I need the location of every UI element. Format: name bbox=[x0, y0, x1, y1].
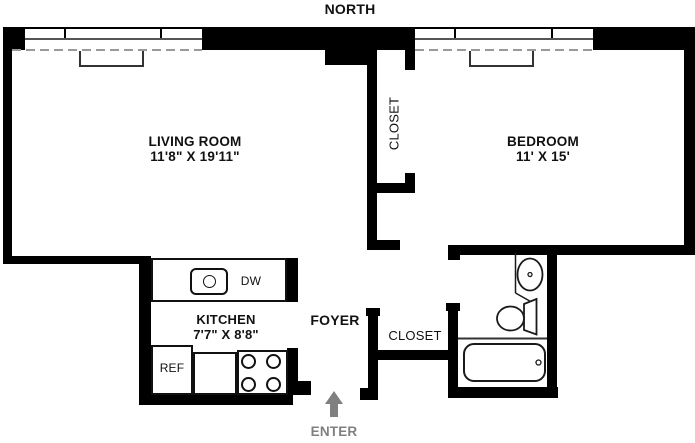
refrigerator-label: REF bbox=[151, 362, 193, 375]
bathroom-sink-drain-icon bbox=[528, 273, 532, 277]
wall-kitchen-right-lower bbox=[287, 348, 298, 395]
bedroom-closet-label: CLOSET bbox=[387, 84, 402, 164]
enter-arrow-shaft bbox=[330, 403, 338, 417]
kitchen-name: KITCHEN bbox=[146, 312, 306, 327]
stove-burner-icon bbox=[241, 377, 256, 392]
wall-foyer-closet-left-foot bbox=[360, 388, 378, 400]
stove-burner-icon bbox=[266, 377, 281, 392]
kitchen-sink-drain-icon bbox=[203, 275, 216, 288]
kitchen-dimensions: 7'7" X 8'8" bbox=[146, 327, 306, 342]
wall-divider-jamb bbox=[377, 240, 400, 250]
dishwasher-label: DW bbox=[231, 275, 271, 288]
bathtub bbox=[464, 344, 545, 381]
kitchen-label: KITCHEN 7'7" X 8'8" bbox=[146, 312, 306, 342]
wall-living-room-bottom bbox=[3, 256, 151, 264]
wall-left-outer bbox=[3, 27, 12, 264]
bedroom-window-outer bbox=[415, 27, 593, 29]
foyer-closet-label: CLOSET bbox=[375, 328, 455, 343]
wall-bedroom-closet-top bbox=[405, 50, 415, 70]
wall-right-outer bbox=[684, 27, 695, 255]
kitchen-counter-bottom bbox=[193, 352, 237, 395]
bedroom-label: BEDROOM 11' X 15' bbox=[443, 134, 643, 164]
bedroom-radiator bbox=[469, 51, 534, 67]
wall-kitchen-right-upper bbox=[287, 258, 298, 302]
floor-plan: NORTH bbox=[0, 0, 695, 443]
toilet-bowl bbox=[497, 307, 524, 331]
living-room-window-outer bbox=[25, 27, 202, 29]
toilet-tank bbox=[524, 299, 537, 335]
wall-foyer-closet-bottom bbox=[373, 350, 450, 360]
living-room-dimensions: 11'8" X 19'11" bbox=[95, 149, 295, 164]
wall-top-right bbox=[593, 27, 684, 50]
north-label: NORTH bbox=[290, 2, 410, 17]
bedroom-name: BEDROOM bbox=[443, 134, 643, 149]
wall-top-middle-bump bbox=[325, 50, 367, 65]
wall-bedroom-closet-bottom-horizontal bbox=[377, 183, 415, 193]
stove-burner-icon bbox=[266, 354, 281, 369]
wall-entry-step bbox=[298, 381, 311, 395]
enter-label: ENTER bbox=[294, 424, 374, 439]
bathroom-fixtures bbox=[455, 252, 550, 390]
wall-top-middle bbox=[202, 27, 415, 50]
bathtub-drain-icon bbox=[536, 360, 541, 365]
bedroom-dimensions: 11' X 15' bbox=[443, 149, 643, 164]
bedroom-window-inner bbox=[415, 38, 593, 40]
wall-kitchen-bottom bbox=[139, 395, 293, 405]
living-room-name: LIVING ROOM bbox=[95, 134, 295, 149]
stove-burner-icon bbox=[241, 354, 256, 369]
foyer-label: FOYER bbox=[295, 313, 375, 328]
living-room-radiator bbox=[79, 51, 144, 67]
wall-living-room-divider bbox=[367, 50, 377, 250]
living-room-label: LIVING ROOM 11'8" X 19'11" bbox=[95, 134, 295, 164]
living-room-window-inner bbox=[25, 38, 202, 40]
